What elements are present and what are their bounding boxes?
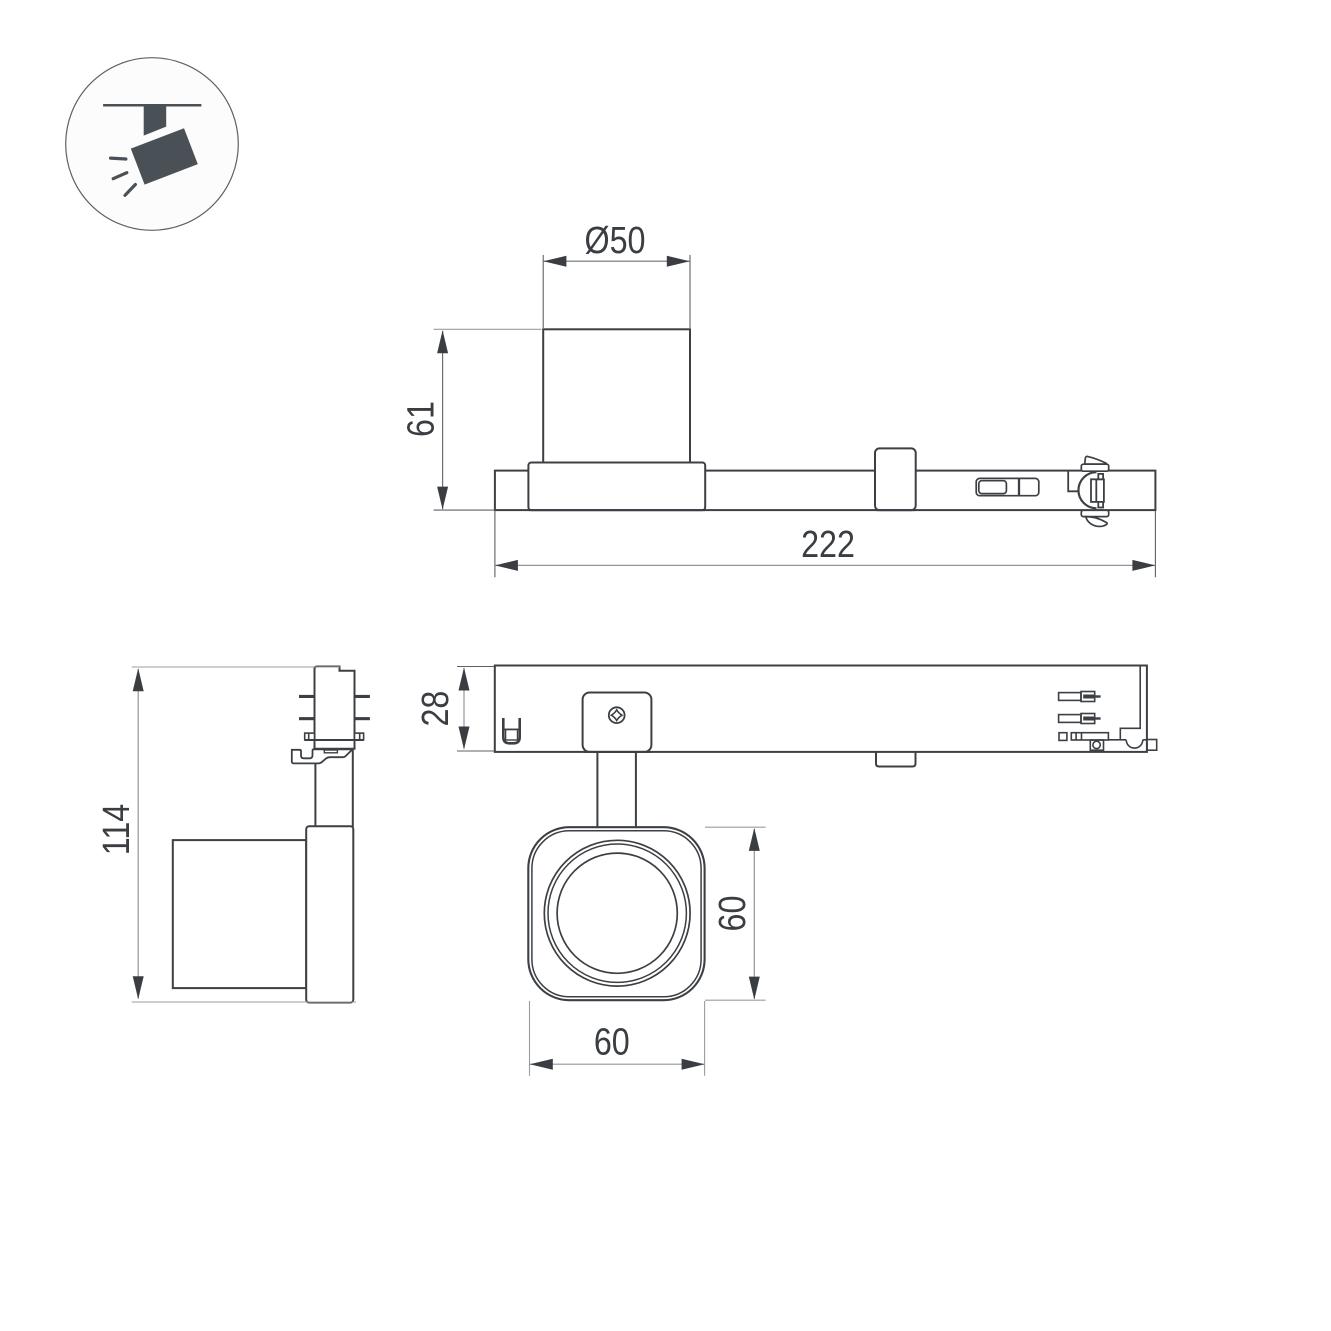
svg-text:222: 222 — [801, 524, 855, 566]
svg-text:60: 60 — [594, 1021, 630, 1063]
svg-text:28: 28 — [415, 691, 457, 727]
svg-text:114: 114 — [96, 804, 138, 855]
svg-text:Ø50: Ø50 — [584, 220, 645, 262]
svg-text:61: 61 — [400, 401, 442, 437]
svg-text:60: 60 — [712, 896, 754, 932]
